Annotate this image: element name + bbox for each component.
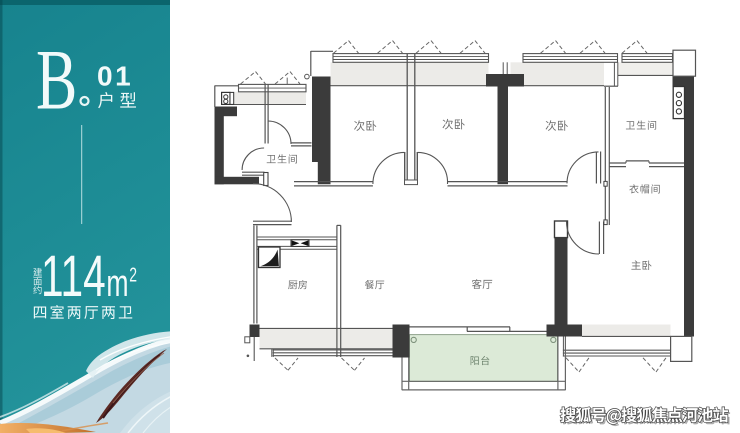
svg-text:B: B bbox=[36, 33, 77, 128]
svg-text:01: 01 bbox=[97, 61, 133, 92]
